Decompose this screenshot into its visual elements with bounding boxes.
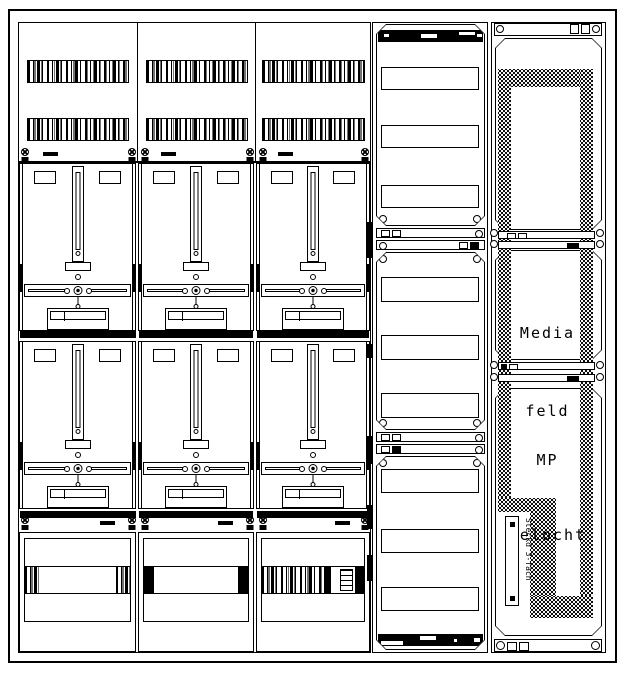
panel-inner-line — [132, 342, 133, 508]
terminal-crossbar — [143, 462, 249, 475]
strip-square — [459, 242, 468, 249]
panel-inner-line — [259, 164, 260, 330]
meter-cabinet-drawing: Media feld MP gelocht Steckd 3-fach — [0, 0, 627, 674]
connector-strip — [376, 444, 485, 454]
hinge-mark — [367, 505, 373, 529]
crossbar-hole-center — [192, 286, 201, 295]
terminal-crossbar — [24, 284, 131, 297]
vent-grille-band — [27, 118, 129, 141]
name-plate-left — [34, 171, 56, 184]
hinge-mark — [250, 264, 253, 292]
hinge-mark — [132, 442, 135, 470]
rail-end-block — [238, 567, 248, 593]
rail-end-strips — [116, 567, 130, 593]
strip-square — [381, 446, 390, 453]
row-busbar — [20, 331, 136, 338]
terminal-device — [340, 569, 353, 591]
meter-mount-slot-inner — [75, 172, 80, 250]
crossbar-slot-right — [209, 289, 245, 292]
hinge-mark — [366, 264, 369, 292]
crossbar-hole-right — [204, 288, 210, 294]
panel-screw — [592, 25, 600, 33]
meter-panel — [138, 163, 254, 331]
grille-divider — [137, 22, 138, 162]
blind-cover-slot — [381, 335, 479, 360]
row-busbar — [139, 331, 253, 338]
terminal-box-divider — [299, 311, 300, 321]
name-plate-right — [99, 349, 121, 362]
meter-panel — [138, 341, 254, 509]
hinge-mark — [367, 555, 373, 581]
vent-grille-band — [146, 118, 248, 141]
din-rail-band — [143, 566, 249, 594]
blind-cover-slot — [381, 277, 479, 302]
panel-screw — [475, 434, 483, 442]
marker-dash — [161, 152, 176, 156]
fixing-bolt — [126, 148, 137, 162]
crossbar-slot-left — [147, 289, 183, 292]
panel-inner-line — [250, 342, 251, 508]
busbar-mark — [381, 641, 403, 645]
mount-screw-hole — [194, 251, 199, 256]
crossbar-hole-left — [182, 466, 188, 472]
strip-square — [570, 24, 579, 34]
fixing-bolt — [126, 516, 137, 530]
crossbar-hole-left — [64, 288, 70, 294]
media-divider-strip — [498, 231, 595, 239]
name-plate-left — [271, 349, 293, 362]
strip-square — [507, 233, 516, 239]
terminal-box-divider — [64, 311, 65, 321]
blind-cover-slot — [381, 67, 479, 90]
marker-dash — [278, 152, 293, 156]
panel-screw — [496, 641, 505, 650]
hinge-mark — [367, 436, 373, 464]
busbar-mark — [474, 638, 480, 642]
strip-square — [392, 434, 401, 441]
busbar-mark — [384, 34, 389, 37]
fixing-bolt — [244, 516, 255, 530]
mount-foot — [300, 262, 326, 271]
mount-screw-hole — [75, 251, 80, 256]
name-plate-left — [153, 171, 175, 184]
terminal-box — [165, 308, 227, 330]
busbar-cover — [378, 30, 483, 42]
name-plate-right — [99, 171, 121, 184]
vent-grille-band — [262, 118, 365, 141]
terminal-box-inner — [168, 489, 224, 498]
terminal-box-divider — [64, 489, 65, 499]
panel-screw — [490, 361, 498, 369]
marker-dash — [100, 521, 115, 525]
meter-mount-slot-inner — [75, 350, 80, 428]
terminal-box — [282, 486, 344, 508]
name-plate-right — [333, 171, 355, 184]
crossbar-hole-right — [86, 466, 92, 472]
terminal-crossbar — [143, 284, 249, 297]
crossbar-slot-left — [147, 467, 183, 470]
media-field-label-line1: Media — [505, 320, 590, 346]
blind-cover-slot — [381, 125, 479, 148]
fixing-bolt — [257, 148, 268, 162]
socket-strip — [505, 516, 519, 606]
hinge-mark — [257, 442, 260, 470]
busbar-mark — [421, 34, 437, 38]
hinge-mark — [367, 222, 373, 258]
busbar-mark — [420, 636, 436, 640]
rail-end-block — [355, 567, 364, 593]
socket-dot — [510, 522, 515, 527]
blind-cover-slot — [381, 393, 479, 418]
panel-screw — [596, 373, 604, 381]
blind-cover-slot — [381, 469, 479, 493]
media-bottom-strip — [494, 639, 602, 652]
panel-screw — [596, 361, 604, 369]
crossbar-slot-right — [209, 467, 245, 470]
crossbar-slot-left — [28, 467, 65, 470]
panel-inner-line — [259, 342, 260, 508]
panel-inner-line — [141, 342, 142, 508]
panel-screw — [496, 25, 504, 33]
cover-panel-face — [377, 457, 484, 649]
fixing-bolt — [139, 516, 150, 530]
cover-panel — [376, 24, 485, 226]
terminal-box — [47, 308, 109, 330]
terminal-box-divider — [299, 489, 300, 499]
busbar-mark — [459, 32, 475, 35]
vent-grille-band — [146, 60, 248, 83]
strip-square — [392, 230, 401, 237]
mount-screw-hole — [311, 251, 316, 256]
strip-square — [507, 642, 517, 651]
terminal-box-inner — [50, 311, 106, 320]
cover-panel-face — [377, 253, 484, 429]
terminal-box-divider — [182, 311, 183, 321]
crossbar-slot-right — [91, 289, 128, 292]
panel-screw — [475, 230, 483, 238]
hinge-mark — [20, 264, 23, 292]
connector-strip — [376, 240, 485, 250]
crossbar-hole-left — [299, 466, 305, 472]
strip-square-filled — [392, 446, 401, 453]
crossbar-hole-center — [73, 464, 82, 473]
panel-inner-line — [132, 164, 133, 330]
panel-screw — [490, 240, 498, 248]
din-rail-band — [24, 566, 131, 594]
vent-grille-band — [262, 60, 365, 83]
terminal-screw-hole — [193, 274, 199, 280]
marker-dash — [218, 521, 233, 525]
connector-strip — [376, 228, 485, 238]
meter-panel — [256, 163, 370, 331]
mount-screw-hole — [75, 429, 80, 434]
perforated-band-top — [498, 69, 593, 87]
panel-inner-line — [141, 164, 142, 330]
terminal-screw-hole — [75, 274, 81, 280]
panel-screw — [596, 229, 604, 237]
terminal-box-inner — [285, 311, 341, 320]
din-rail-band — [261, 566, 365, 594]
crossbar-hole-center — [309, 464, 318, 473]
crossbar-hole-center — [309, 286, 318, 295]
crossbar-hole-right — [321, 466, 327, 472]
row-busbar — [139, 511, 253, 518]
terminal-screw-hole — [193, 452, 199, 458]
meter-panel — [19, 163, 136, 331]
crossbar-hole-right — [321, 288, 327, 294]
meter-panel — [19, 341, 136, 509]
socket-dot — [510, 596, 515, 601]
perforated-band-bottom — [530, 596, 593, 618]
crossbar-slot-left — [265, 467, 300, 470]
mount-foot — [65, 262, 91, 271]
panel-screw — [379, 242, 387, 250]
busbar-cover — [378, 634, 483, 646]
terminal-box-inner — [285, 489, 341, 498]
row-busbar — [20, 511, 136, 518]
crossbar-hole-center — [73, 286, 82, 295]
blind-cover-slot — [381, 587, 479, 611]
grille-divider — [255, 22, 256, 162]
crossbar-hole-center — [192, 464, 201, 473]
marker-dash — [335, 521, 350, 525]
connector-strip — [376, 432, 485, 442]
mount-foot — [183, 440, 209, 449]
crossbar-slot-left — [265, 289, 300, 292]
row-busbar — [257, 511, 369, 518]
meter-mount-slot-inner — [311, 172, 316, 250]
strip-square — [519, 642, 529, 651]
terminal-box-inner — [168, 311, 224, 320]
name-plate-left — [153, 349, 175, 362]
hinge-mark — [20, 442, 23, 470]
panel-inner-line — [22, 342, 23, 508]
lower-panel — [19, 532, 136, 652]
crossbar-slot-right — [326, 467, 361, 470]
strip-square-filled — [470, 242, 479, 249]
fixing-bolt — [139, 148, 150, 162]
panel-screw — [596, 240, 604, 248]
blind-cover-slot — [381, 185, 479, 208]
marker-dash — [43, 152, 58, 156]
panel-screw — [490, 373, 498, 381]
terminal-crossbar — [24, 462, 131, 475]
fixing-bolt — [244, 148, 255, 162]
lower-panel — [256, 532, 370, 652]
panel-screw — [475, 446, 483, 454]
crossbar-slot-left — [28, 289, 65, 292]
terminal-screw-hole — [310, 452, 316, 458]
vent-grille-band — [27, 60, 129, 83]
lower-panel — [138, 532, 254, 652]
busbar-mark — [477, 34, 482, 37]
crossbar-hole-right — [86, 288, 92, 294]
media-divider-strip — [498, 241, 595, 249]
terminal-box — [165, 486, 227, 508]
rail-end-strips — [25, 567, 39, 593]
crossbar-slot-right — [326, 289, 361, 292]
busbar-mark — [454, 639, 457, 642]
terminal-screw-hole — [310, 274, 316, 280]
crossbar-hole-right — [204, 466, 210, 472]
crossbar-hole-left — [64, 466, 70, 472]
name-plate-left — [271, 171, 293, 184]
fixing-bolt — [19, 148, 30, 162]
cover-panel-face — [377, 25, 484, 225]
row-busbar — [257, 331, 369, 338]
strip-square — [381, 230, 390, 237]
name-plate-right — [217, 171, 239, 184]
mp-gelocht-label-line1: MP — [496, 448, 599, 473]
terminal-crossbar — [261, 462, 365, 475]
strip-square-filled — [567, 243, 579, 249]
terminal-box — [47, 486, 109, 508]
rail-block — [325, 567, 331, 593]
meter-mount-slot-inner — [194, 350, 199, 428]
fixing-bolt — [19, 516, 30, 530]
panel-inner-line — [250, 164, 251, 330]
mount-screw-hole — [194, 429, 199, 434]
panel-screw — [591, 641, 600, 650]
terminal-box — [282, 308, 344, 330]
panel-inner-line — [22, 164, 23, 330]
meter-mount-slot-inner — [311, 350, 316, 428]
terminal-box-inner — [50, 489, 106, 498]
cover-panel — [376, 456, 485, 650]
name-plate-right — [333, 349, 355, 362]
meter-panel — [256, 341, 370, 509]
fixing-bolt — [359, 148, 370, 162]
terminal-screw-hole — [75, 452, 81, 458]
meter-mount-slot-inner — [194, 172, 199, 250]
rail-end-block — [144, 567, 154, 593]
panel-screw — [490, 229, 498, 237]
panel-inner-line — [366, 342, 367, 508]
crossbar-hole-left — [299, 288, 305, 294]
name-plate-left — [34, 349, 56, 362]
terminal-crossbar — [261, 284, 365, 297]
cover-panel — [376, 252, 485, 430]
hinge-mark — [139, 442, 142, 470]
fixing-bolt — [257, 516, 268, 530]
mount-foot — [183, 262, 209, 271]
socket-label: Steckd 3-fach — [521, 518, 535, 606]
mount-foot — [65, 440, 91, 449]
strip-square — [381, 434, 390, 441]
hinge-mark — [250, 442, 253, 470]
terminal-box-divider — [182, 489, 183, 499]
mount-foot — [300, 440, 326, 449]
strip-square — [518, 233, 527, 239]
mount-screw-hole — [311, 429, 316, 434]
crossbar-slot-right — [91, 467, 128, 470]
hinge-mark — [257, 264, 260, 292]
name-plate-right — [217, 349, 239, 362]
strip-square — [581, 24, 590, 34]
hinge-mark — [132, 264, 135, 292]
crossbar-hole-left — [182, 288, 188, 294]
blind-cover-slot — [381, 529, 479, 553]
breaker-row — [262, 567, 325, 593]
hinge-mark — [139, 264, 142, 292]
hinge-mark — [367, 344, 373, 358]
